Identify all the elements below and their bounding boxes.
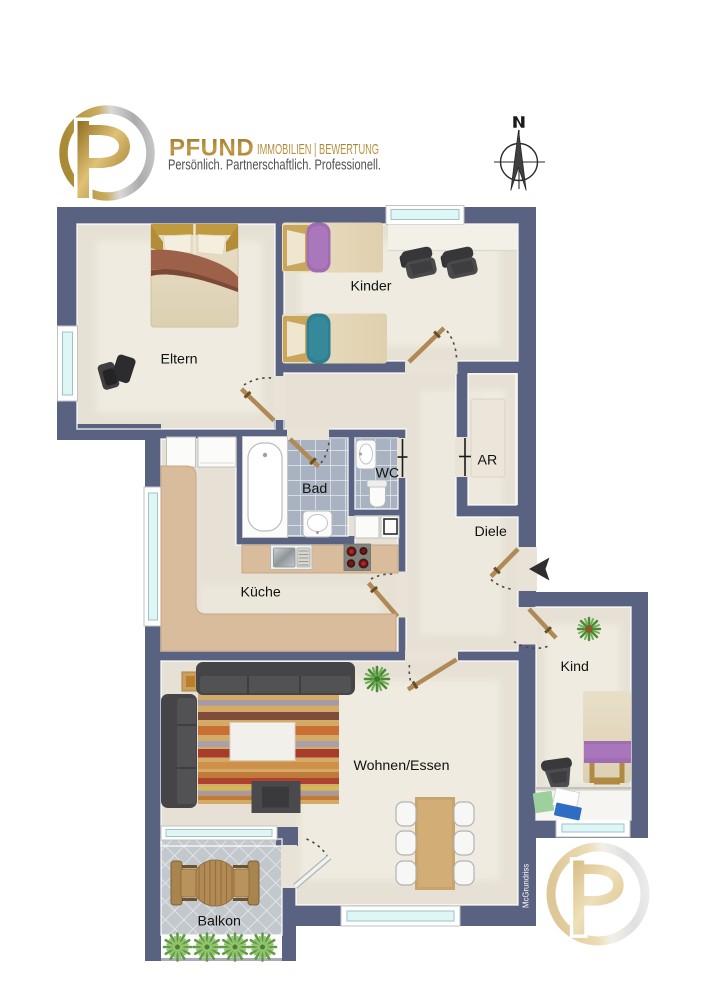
- svg-text:Persönlich. Partnerschaftlich.: Persönlich. Partnerschaftlich. Professio…: [168, 157, 381, 174]
- svg-text:Kind: Kind: [561, 659, 589, 675]
- svg-text:WC: WC: [376, 466, 400, 482]
- svg-text:Küche: Küche: [241, 585, 281, 601]
- svg-text:IMMOBILIEN | BEWERTUNG: IMMOBILIEN | BEWERTUNG: [257, 141, 379, 158]
- svg-text:Eltern: Eltern: [161, 352, 198, 368]
- svg-text:McGrundriss: McGrundriss: [522, 864, 531, 908]
- svg-text:Kinder: Kinder: [351, 279, 392, 295]
- svg-text:AR: AR: [478, 453, 498, 469]
- svg-text:Diele: Diele: [475, 524, 507, 540]
- svg-text:Bad: Bad: [302, 481, 327, 497]
- svg-text:Wohnen/Essen: Wohnen/Essen: [354, 758, 450, 774]
- svg-text:Balkon: Balkon: [198, 914, 241, 930]
